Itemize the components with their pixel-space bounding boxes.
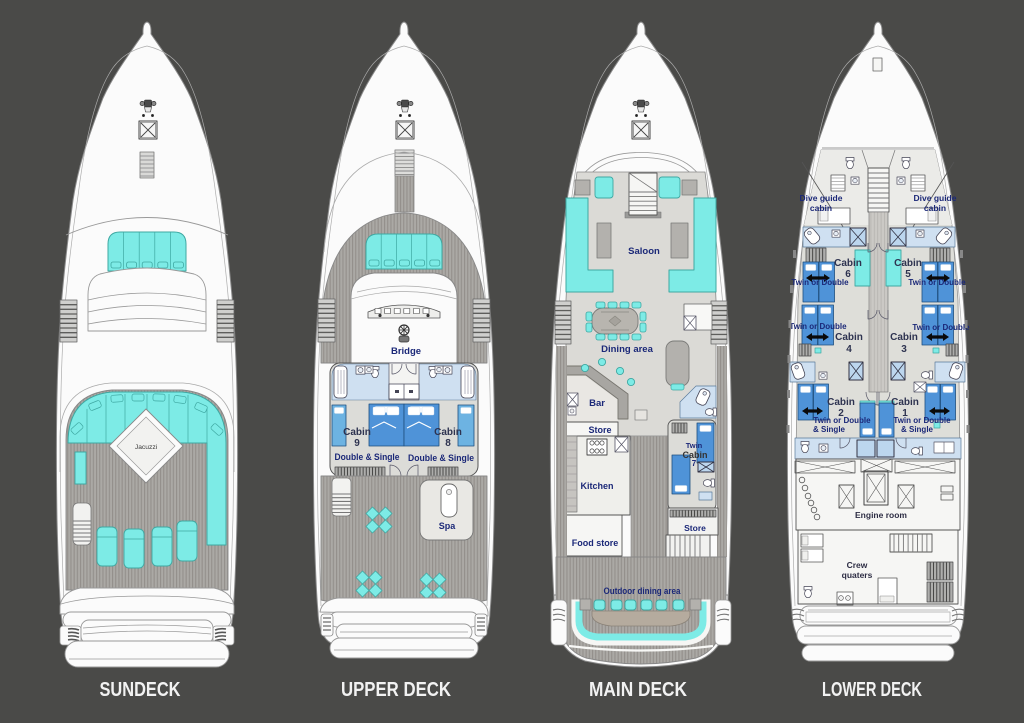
svg-text:& Single: & Single (813, 425, 846, 434)
svg-text:3: 3 (901, 344, 907, 355)
svg-text:Cabin: Cabin (827, 397, 855, 408)
svg-text:Engine room: Engine room (855, 510, 907, 520)
svg-text:Dive guide: Dive guide (800, 193, 843, 203)
svg-text:Kitchen: Kitchen (580, 481, 613, 491)
svg-text:Crew: Crew (847, 560, 868, 570)
svg-text:cabin: cabin (924, 203, 946, 213)
svg-text:Cabin: Cabin (890, 332, 918, 343)
svg-text:Dive guide: Dive guide (914, 193, 957, 203)
svg-text:UPPER DECK: UPPER DECK (341, 679, 451, 701)
svg-text:Double & Single: Double & Single (335, 452, 400, 463)
svg-text:Outdoor dining area: Outdoor dining area (604, 586, 682, 596)
svg-text:Saloon: Saloon (628, 246, 660, 257)
svg-text:LOWER DECK: LOWER DECK (822, 679, 922, 701)
svg-text:Cabin: Cabin (894, 258, 922, 269)
svg-text:8: 8 (445, 438, 451, 449)
svg-text:cabin: cabin (810, 203, 832, 213)
svg-text:Twin or Double: Twin or Double (791, 278, 849, 287)
svg-text:Twin: Twin (686, 441, 703, 450)
svg-text:Bar: Bar (589, 398, 605, 409)
svg-text:4: 4 (846, 344, 852, 355)
svg-text:Cabin: Cabin (891, 397, 919, 408)
svg-text:Bridge: Bridge (391, 346, 421, 357)
svg-text:Cabin: Cabin (434, 427, 462, 438)
svg-text:Jacuzzi: Jacuzzi (135, 444, 158, 451)
svg-text:SUNDECK: SUNDECK (100, 679, 181, 701)
svg-text:& Single: & Single (901, 425, 934, 434)
svg-text:Twin or Double: Twin or Double (813, 416, 871, 425)
svg-text:Double & Single: Double & Single (408, 453, 474, 464)
svg-text:Spa: Spa (439, 521, 457, 531)
svg-text:MAIN DECK: MAIN DECK (589, 679, 687, 701)
svg-text:Cabin: Cabin (835, 332, 863, 343)
svg-text:Store: Store (684, 523, 706, 533)
svg-text:Cabin: Cabin (343, 427, 371, 438)
svg-text:7: 7 (692, 459, 697, 468)
svg-text:Food store: Food store (572, 538, 619, 548)
svg-text:Cabin: Cabin (834, 258, 862, 269)
svg-text:Twin or Double: Twin or Double (893, 416, 951, 425)
svg-text:Store: Store (588, 425, 611, 435)
svg-text:9: 9 (354, 438, 360, 449)
svg-text:quaters: quaters (842, 570, 873, 580)
svg-text:Twin or Double: Twin or Double (912, 323, 970, 332)
svg-text:Dining area: Dining area (601, 344, 653, 355)
svg-text:Twin or Double: Twin or Double (908, 278, 966, 287)
svg-text:Twin or Double: Twin or Double (789, 322, 847, 331)
